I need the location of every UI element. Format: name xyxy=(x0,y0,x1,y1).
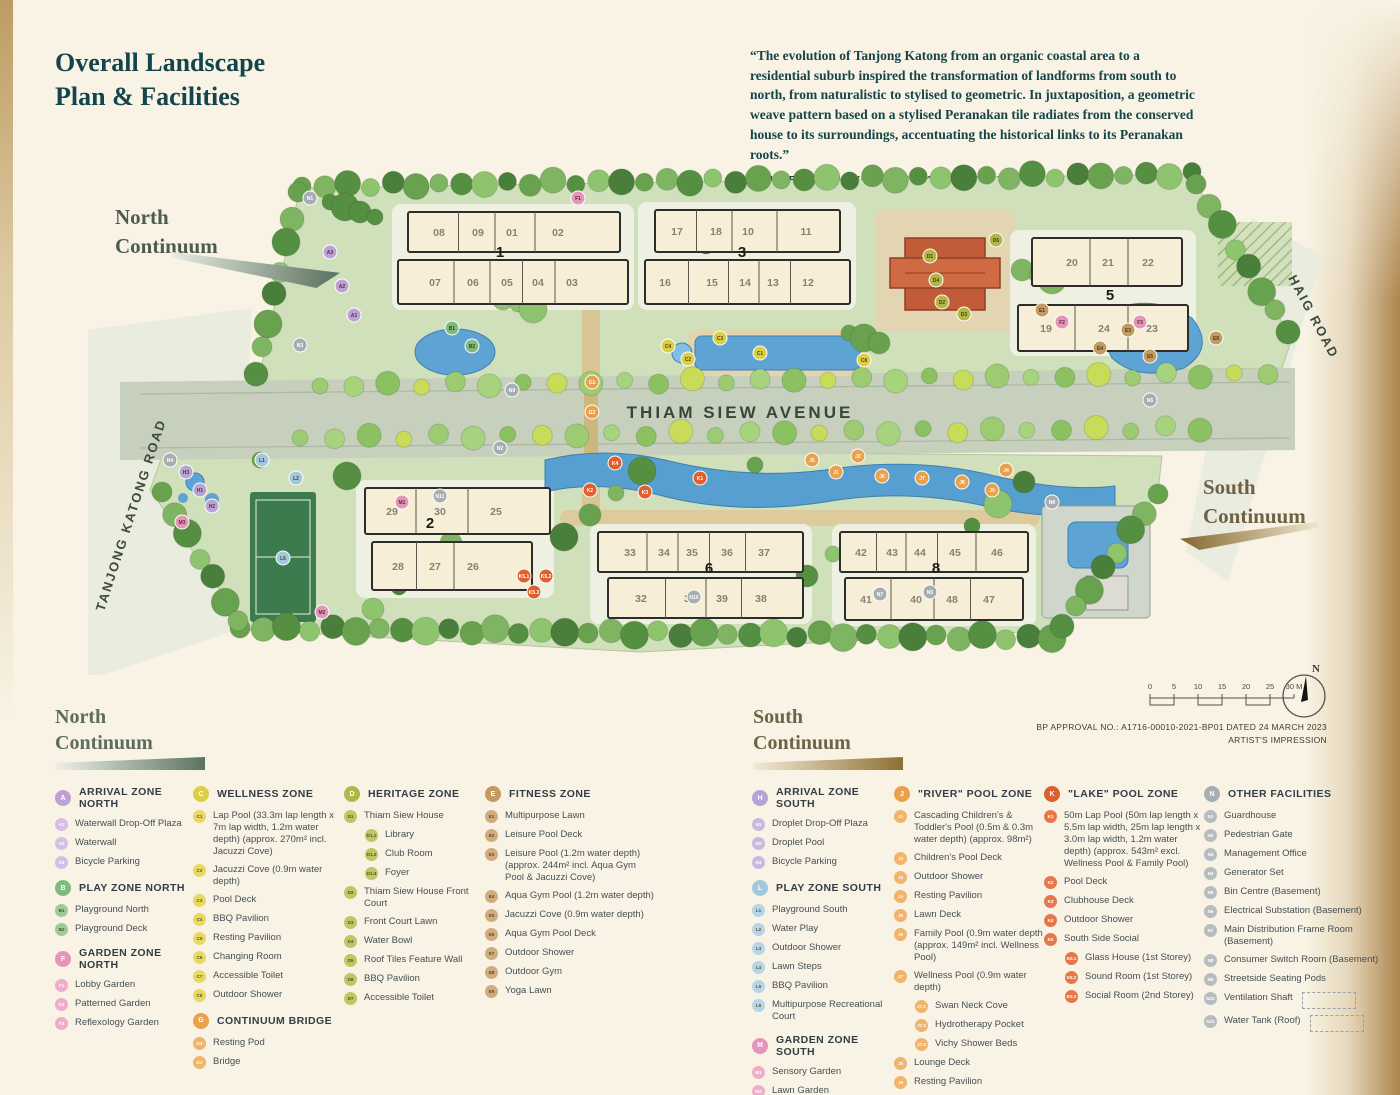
legend-header-south: South Continuum xyxy=(753,704,851,756)
tree-south-right xyxy=(1117,516,1145,544)
unit-number: 03 xyxy=(566,277,578,289)
legend-item-C5: C5Resting Pavilion xyxy=(193,932,343,945)
legend-item-N4: N4Generator Set xyxy=(1204,867,1390,880)
legend-item-G1: G1Resting Pod xyxy=(193,1037,343,1050)
facility-badge-A3: A3 xyxy=(55,856,68,869)
legend-group-B: BPLAY ZONE NORTHB1Playground NorthB2Play… xyxy=(55,880,193,936)
tree-avenue-top xyxy=(376,371,400,395)
tree-north-edge xyxy=(862,165,884,187)
facility-badge-K5.2: K5.2 xyxy=(1065,971,1078,984)
facility-label-J6: Family Pool (0.9m water depth (approx. 1… xyxy=(914,928,1052,964)
map-badge-code-A2: A2 xyxy=(339,284,346,290)
map-badge-code-D6: D6 xyxy=(993,238,1000,244)
tree-north-right xyxy=(1237,254,1261,278)
tree-avenue-bottom xyxy=(877,422,901,446)
map-badge-code-J5: J5 xyxy=(809,458,815,464)
facility-label-H3: Bicycle Parking xyxy=(772,856,837,868)
tree-south-edge xyxy=(808,621,832,645)
map-badge-code-N2: N2 xyxy=(497,446,504,452)
facility-label-B2: Playground Deck xyxy=(75,923,147,935)
scale-notch xyxy=(1198,698,1222,705)
facility-label-C8: Outdoor Shower xyxy=(213,989,282,1001)
facility-badge-J4: J4 xyxy=(894,890,907,903)
zone-title-N: OTHER FACILITIES xyxy=(1228,788,1331,800)
unit-number: 30 xyxy=(434,506,446,518)
legend-item-E3: E3Leisure Pool (1.2m water depth) (appro… xyxy=(485,848,657,884)
tree-north-left xyxy=(244,362,268,386)
zone-title-A: ARRIVAL ZONE NORTH xyxy=(79,786,193,810)
facility-badge-N11: N11 xyxy=(1204,1015,1217,1028)
map-badge-code-C2: C2 xyxy=(685,357,692,363)
facility-label-A1: Waterwall Drop-Off Plaza xyxy=(75,818,182,830)
facility-label-E6: Aqua Gym Pool Deck xyxy=(505,928,596,940)
tree-north-edge xyxy=(745,165,771,191)
facility-label-N2: Pedestrian Gate xyxy=(1224,829,1293,841)
facility-badge-M2: M2 xyxy=(752,1085,765,1095)
map-badge-code-M1: M1 xyxy=(399,500,406,506)
unit-number: 37 xyxy=(758,547,770,559)
tree-avenue-bottom xyxy=(461,426,485,450)
legend-item-L6: L6Multipurpose Recreational Court xyxy=(752,999,892,1023)
tree-south-edge xyxy=(947,627,971,651)
map-badge-code-H2: H2 xyxy=(209,504,216,510)
facility-badge-E3: E3 xyxy=(485,848,498,861)
facility-badge-C7: C7 xyxy=(193,970,206,983)
facility-label-D6: BBQ Pavilion xyxy=(364,973,420,985)
tree-south-right xyxy=(1050,614,1074,638)
legend-item-F3: F3Reflexology Garden xyxy=(55,1017,193,1030)
facility-badge-D6: D6 xyxy=(344,973,357,986)
facility-label-K2: Pool Deck xyxy=(1064,876,1107,888)
legend-column-1: AARRIVAL ZONE NORTHA1Waterwall Drop-Off … xyxy=(55,786,193,1041)
tree-avenue-top xyxy=(1023,369,1039,385)
legend-column-8: NOTHER FACILITIESN1GuardhouseN2Pedestria… xyxy=(1204,786,1390,1043)
facility-badge-D1.2: D1.2 xyxy=(365,848,378,861)
tree-north-edge xyxy=(382,171,404,193)
legend-item-E4: E4Aqua Gym Pool (1.2m water depth) xyxy=(485,890,657,903)
facility-label-L1: Playground South xyxy=(772,904,848,916)
map-badge-code-K2: K2 xyxy=(587,488,594,494)
unit-number: 08 xyxy=(433,227,445,239)
legend-item-L4: L4Lawn Steps xyxy=(752,961,892,974)
facility-label-C7: Accessible Toilet xyxy=(213,970,283,982)
facility-label-E5: Jacuzzi Cove (0.9m water depth) xyxy=(505,909,644,921)
map-badge-code-E3: E3 xyxy=(1125,328,1131,334)
tree-north-edge xyxy=(725,171,747,193)
zone-badge-D: D xyxy=(344,786,360,802)
facility-label-F3: Reflexology Garden xyxy=(75,1017,159,1029)
tree-avenue-top xyxy=(985,364,1009,388)
zone-badge-A: A xyxy=(55,790,71,806)
facility-badge-D5: D5 xyxy=(344,954,357,967)
map-badge-code-N10: N10 xyxy=(689,595,698,601)
facility-badge-B1: B1 xyxy=(55,904,68,917)
facility-badge-F3: F3 xyxy=(55,1017,68,1030)
facility-badge-E7: E7 xyxy=(485,947,498,960)
facility-badge-J3: J3 xyxy=(894,871,907,884)
facility-badge-A2: A2 xyxy=(55,837,68,850)
legend-item-L2: L2Water Play xyxy=(752,923,892,936)
legend-group-L: LPLAY ZONE SOUTHL1Playground SouthL2Wate… xyxy=(752,880,892,1023)
legend-item-D1: D1Thiam Siew House xyxy=(344,810,486,823)
tree-south-left xyxy=(152,482,172,502)
facility-label-C3: Pool Deck xyxy=(213,894,256,906)
map-badge-code-K4: K4 xyxy=(612,461,619,467)
zone-badge-B: B xyxy=(55,880,71,896)
facility-label-E8: Outdoor Gym xyxy=(505,966,562,978)
tree-south-left xyxy=(201,564,225,588)
block-number-6: 6 xyxy=(705,560,713,577)
legend-item-K5.3: K5.3Social Room (2nd Storey) xyxy=(1044,990,1206,1003)
tree-avenue-bottom xyxy=(429,424,449,444)
unit-number: 25 xyxy=(490,506,502,518)
legend-north-wedge xyxy=(55,757,205,770)
unit-number: 27 xyxy=(429,561,441,573)
facility-badge-N8: N8 xyxy=(1204,954,1217,967)
tree-north-edge xyxy=(814,164,840,190)
tree-north-edge xyxy=(951,165,977,191)
facility-label-C1: Lap Pool (33.3m lap length x 7m lap widt… xyxy=(213,810,343,858)
map-badge-code-M3: M3 xyxy=(179,520,186,526)
tree-north-edge xyxy=(998,168,1020,190)
legend-item-J5: J5Lawn Deck xyxy=(894,909,1052,922)
facility-badge-A1: A1 xyxy=(55,818,68,831)
legend-column-3: DHERITAGE ZONED1Thiam Siew HouseD1.1Libr… xyxy=(344,786,486,1016)
facility-badge-N1: N1 xyxy=(1204,810,1217,823)
facility-label-K1: 50m Lap Pool (50m lap length x 5.5m lap … xyxy=(1064,810,1206,870)
wellness-pond xyxy=(415,329,495,375)
unit-number: 17 xyxy=(671,226,683,238)
legend-item-H1: H1Droplet Drop-Off Plaza xyxy=(752,818,892,831)
legend-item-N5: N5Bin Centre (Basement) xyxy=(1204,886,1390,899)
tree-avenue-bottom xyxy=(1155,416,1175,436)
legend-group-header-H: HARRIVAL ZONE SOUTH xyxy=(752,786,892,810)
tree-avenue-bottom xyxy=(1123,423,1139,439)
tree-avenue-top xyxy=(680,367,704,391)
tree-south-edge xyxy=(412,617,440,645)
facility-badge-F2: F2 xyxy=(55,998,68,1011)
legend-group-E: EFITNESS ZONEE1Multipurpose LawnE2Leisur… xyxy=(485,786,657,998)
facility-label-C2: Jacuzzi Cove (0.9m water depth) xyxy=(213,864,343,888)
tree-north-edge xyxy=(793,169,815,191)
legend-item-K5.1: K5.1Glass House (1st Storey) xyxy=(1044,952,1206,965)
facility-badge-J7: J7 xyxy=(894,970,907,983)
map-badge-code-L2: L2 xyxy=(293,476,299,482)
tree-north-edge xyxy=(567,175,585,193)
facility-badge-C5: C5 xyxy=(193,932,206,945)
tree-south-scatter xyxy=(825,546,841,562)
legend-item-J4: J4Resting Pavilion xyxy=(894,890,1052,903)
facility-badge-E9: E9 xyxy=(485,985,498,998)
facility-badge-H1: H1 xyxy=(752,818,765,831)
tree-avenue-bottom xyxy=(1019,422,1035,438)
tree-south-edge xyxy=(369,619,389,639)
facility-label-H1: Droplet Drop-Off Plaza xyxy=(772,818,868,830)
tree-north-left xyxy=(254,310,282,338)
map-label-north-continuum: North Continuum xyxy=(115,203,218,261)
unit-number: 44 xyxy=(914,547,926,559)
facility-label-E1: Multipurpose Lawn xyxy=(505,810,585,822)
legend-item-L5: L5BBQ Pavilion xyxy=(752,980,892,993)
map-badge-code-B1: B1 xyxy=(449,326,456,332)
tree-south-scatter xyxy=(550,523,578,551)
legend-item-N7: N7Main Distribution Frame Room (Basement… xyxy=(1204,924,1390,948)
facility-badge-N6: N6 xyxy=(1204,905,1217,918)
map-badge-code-F2: F2 xyxy=(1059,320,1065,326)
tree-avenue-top xyxy=(344,377,364,397)
zone-badge-K: K xyxy=(1044,786,1060,802)
tree-north-scatter xyxy=(367,209,383,225)
map-badge-code-N7: N7 xyxy=(877,592,884,598)
tree-north-edge xyxy=(772,171,790,189)
map-badge-code-L1: L1 xyxy=(259,458,265,464)
legend-group-header-G: GCONTINUUM BRIDGE xyxy=(193,1013,343,1029)
facility-label-J5: Lawn Deck xyxy=(914,909,961,921)
map-badge-code-F3: F3 xyxy=(1137,320,1143,326)
map-badge-code-J4: J4 xyxy=(1003,468,1009,474)
map-badge-code-E8: E8 xyxy=(1213,336,1219,342)
facility-label-J8: Lounge Deck xyxy=(914,1057,970,1069)
facility-badge-M1: M1 xyxy=(752,1066,765,1079)
legend-group-D: DHERITAGE ZONED1Thiam Siew HouseD1.1Libr… xyxy=(344,786,486,1005)
tree-north-edge xyxy=(882,167,908,193)
tree-south-left xyxy=(228,611,248,631)
scale-tick-label: 10 xyxy=(1194,682,1202,691)
map-badge-code-G2: G2 xyxy=(589,410,596,416)
tree-avenue-top xyxy=(547,373,567,393)
facility-badge-D2: D2 xyxy=(344,886,357,899)
tree-avenue-bottom xyxy=(636,427,656,447)
unit-number: 12 xyxy=(802,277,814,289)
facility-badge-G2: G2 xyxy=(193,1056,206,1069)
facility-label-E2: Leisure Pool Deck xyxy=(505,829,582,841)
tree-north-edge xyxy=(403,174,429,200)
unit-number: 48 xyxy=(946,594,958,606)
tree-north-edge xyxy=(335,171,361,197)
unit-number: 33 xyxy=(624,547,636,559)
avenue-label: THIAM SIEW AVENUE xyxy=(627,403,854,422)
facility-badge-K5: K5 xyxy=(1044,933,1057,946)
tree-south-edge xyxy=(856,624,876,644)
facility-label-J4: Resting Pavilion xyxy=(914,890,982,902)
map-badge-code-D3: D3 xyxy=(961,312,968,318)
map-badge-code-N8: N8 xyxy=(1049,500,1056,506)
legend-item-J9: J9Resting Pavilion xyxy=(894,1076,1052,1089)
tree-avenue-bottom xyxy=(773,421,797,445)
map-badge-code-N9: N9 xyxy=(509,388,516,394)
bp-approval-text: BP APPROVAL NO.: A1716-00010-2021-BP01 D… xyxy=(1005,722,1327,732)
legend-item-N6: N6Electrical Substation (Basement) xyxy=(1204,905,1390,918)
tree-avenue-top xyxy=(1226,365,1242,381)
facility-badge-J7.2: J7.2 xyxy=(915,1019,928,1032)
legend-item-J3: J3Outdoor Shower xyxy=(894,871,1052,884)
map-badge-code-D2: D2 xyxy=(939,300,946,306)
tree-north-edge xyxy=(677,170,703,196)
tree-north-edge xyxy=(540,167,566,193)
legend-group-header-L: LPLAY ZONE SOUTH xyxy=(752,880,892,896)
unit-number: 05 xyxy=(501,277,513,289)
tree-avenue-top xyxy=(1087,363,1111,387)
tree-south-edge xyxy=(899,623,927,651)
legend-item-J7.3: J7.3Vichy Shower Beds xyxy=(894,1038,1052,1051)
legend-group-C: CWELLNESS ZONEC1Lap Pool (33.3m lap leng… xyxy=(193,786,343,1002)
map-badge-code-A1: A1 xyxy=(351,313,358,319)
map-badge-code-E1: E1 xyxy=(1039,308,1045,314)
facility-label-D1: Thiam Siew House xyxy=(364,810,444,822)
legend-item-D4: D4Water Bowl xyxy=(344,935,486,948)
unit-number: 43 xyxy=(886,547,898,559)
facility-badge-L3: L3 xyxy=(752,942,765,955)
tree-south-edge xyxy=(760,619,788,647)
tree-north-left xyxy=(262,282,286,306)
legend-item-C6: C6Changing Room xyxy=(193,951,343,964)
legend-item-D1.1: D1.1Library xyxy=(344,829,486,842)
facility-label-A2: Waterwall xyxy=(75,837,116,849)
legend-item-N1: N1Guardhouse xyxy=(1204,810,1390,823)
facility-label-A3: Bicycle Parking xyxy=(75,856,140,868)
tree-south-edge xyxy=(648,621,668,641)
facility-badge-D1.1: D1.1 xyxy=(365,829,378,842)
map-badge-code-H3: H3 xyxy=(183,470,190,476)
facility-badge-N2: N2 xyxy=(1204,829,1217,842)
zone-title-D: HERITAGE ZONE xyxy=(368,788,459,800)
map-badge-code-N5: N5 xyxy=(927,590,934,596)
unit-number: 20 xyxy=(1066,257,1078,269)
facility-label-D3: Front Court Lawn xyxy=(364,916,437,928)
facility-label-D4: Water Bowl xyxy=(364,935,412,947)
legend-item-F1: F1Lobby Garden xyxy=(55,979,193,992)
tree-avenue-top xyxy=(884,369,908,393)
facility-label-J2: Children's Pool Deck xyxy=(914,852,1002,864)
tree-avenue-bottom xyxy=(1188,418,1212,442)
legend-item-N11: N11Water Tank (Roof) xyxy=(1204,1015,1390,1032)
facility-badge-N7: N7 xyxy=(1204,924,1217,937)
block-number-5: 5 xyxy=(1106,287,1114,304)
droplet-pool-3 xyxy=(178,493,188,503)
tree-avenue-top xyxy=(477,374,501,398)
legend-item-K2: K2Pool Deck xyxy=(1044,876,1206,889)
tree-north-edge xyxy=(430,174,448,192)
legend-column-4: EFITNESS ZONEE1Multipurpose LawnE2Leisur… xyxy=(485,786,657,1009)
legend-item-B2: B2Playground Deck xyxy=(55,923,193,936)
legend-group-header-F: FGARDEN ZONE NORTH xyxy=(55,947,193,971)
tree-avenue-top xyxy=(820,372,836,388)
legend-item-E8: E8Outdoor Gym xyxy=(485,966,657,979)
tree-avenue-top xyxy=(852,367,872,387)
tree-south-right xyxy=(1066,596,1086,616)
tree-north-edge xyxy=(498,172,516,190)
facility-badge-D4: D4 xyxy=(344,935,357,948)
facility-badge-G1: G1 xyxy=(193,1037,206,1050)
facility-badge-F1: F1 xyxy=(55,979,68,992)
legend-item-J6: J6Family Pool (0.9m water depth (approx.… xyxy=(894,928,1052,964)
tree-avenue-top xyxy=(782,368,806,392)
facility-badge-C4: C4 xyxy=(193,913,206,926)
facility-badge-B2: B2 xyxy=(55,923,68,936)
legend-group-header-C: CWELLNESS ZONE xyxy=(193,786,343,802)
facility-label-E4: Aqua Gym Pool (1.2m water depth) xyxy=(505,890,654,902)
tree-avenue-top xyxy=(649,374,669,394)
facility-badge-C1: C1 xyxy=(193,810,206,823)
tree-north-scatter xyxy=(868,332,890,354)
legend-group-header-M: MGARDEN ZONE SOUTH xyxy=(752,1034,892,1058)
map-badge-code-N4: N4 xyxy=(167,458,174,464)
facility-label-K5.3: Social Room (2nd Storey) xyxy=(1085,990,1194,1002)
facility-badge-E4: E4 xyxy=(485,890,498,903)
map-badge-code-M2: M2 xyxy=(319,610,326,616)
tree-avenue-bottom xyxy=(357,423,381,447)
tree-north-right xyxy=(1265,300,1285,320)
unit-number: 19 xyxy=(1040,323,1052,335)
facility-label-G2: Bridge xyxy=(213,1056,240,1068)
zone-title-J: "RIVER" POOL ZONE xyxy=(918,788,1032,800)
legend-item-E1: E1Multipurpose Lawn xyxy=(485,810,657,823)
map-badge-code-J9: J9 xyxy=(989,488,995,494)
facility-label-L5: BBQ Pavilion xyxy=(772,980,828,992)
tree-avenue-top xyxy=(1156,363,1176,383)
legend-item-J7.1: J7.1Swan Neck Cove xyxy=(894,1000,1052,1013)
map-badge-code-J7: J7 xyxy=(919,476,925,482)
facility-badge-C6: C6 xyxy=(193,951,206,964)
facility-label-K3: Clubhouse Deck xyxy=(1064,895,1134,907)
facility-label-D2: Thiam Siew House Front Court xyxy=(364,886,486,910)
tree-south-edge xyxy=(578,623,598,643)
tree-south-edge xyxy=(481,615,509,643)
facility-badge-C2: C2 xyxy=(193,864,206,877)
tree-north-edge xyxy=(909,167,927,185)
facility-label-D1.3: Foyer xyxy=(385,867,409,879)
tree-avenue-top xyxy=(414,379,430,395)
legend-item-N2: N2Pedestrian Gate xyxy=(1204,829,1390,842)
zone-badge-M: M xyxy=(752,1038,768,1054)
map-badge-code-H1: H1 xyxy=(197,488,204,494)
unit-number: 41 xyxy=(860,594,872,606)
legend-item-D1.2: D1.2Club Room xyxy=(344,848,486,861)
dashed-outline-icon-N10 xyxy=(1302,992,1356,1009)
legend-item-C4: C4BBQ Pavilion xyxy=(193,913,343,926)
legend-group-M: MGARDEN ZONE SOUTHM1Sensory GardenM2Lawn… xyxy=(752,1034,892,1095)
tree-south-edge xyxy=(1017,624,1041,648)
tree-avenue-bottom xyxy=(915,421,931,437)
facility-badge-J2: J2 xyxy=(894,852,907,865)
page-title: Overall Landscape Plan & Facilities xyxy=(55,46,265,115)
facility-badge-N4: N4 xyxy=(1204,867,1217,880)
map-badge-code-D4: D4 xyxy=(933,278,940,284)
unit-number: 34 xyxy=(658,547,670,559)
unit-number: 28 xyxy=(392,561,404,573)
legend-item-D1.3: D1.3Foyer xyxy=(344,867,486,880)
tree-south-edge xyxy=(530,618,554,642)
facility-badge-C8: C8 xyxy=(193,989,206,1002)
legend-header-north: North Continuum xyxy=(55,704,153,756)
unit-number: 16 xyxy=(659,277,671,289)
tree-north-left xyxy=(272,228,300,256)
tree-south-scatter xyxy=(362,598,384,620)
unit-number: 45 xyxy=(949,547,961,559)
tree-north-edge xyxy=(704,169,722,187)
legend-item-C8: C8Outdoor Shower xyxy=(193,989,343,1002)
facility-badge-J7.3: J7.3 xyxy=(915,1038,928,1051)
legend-group-A: AARRIVAL ZONE NORTHA1Waterwall Drop-Off … xyxy=(55,786,193,869)
tree-avenue-top xyxy=(1258,365,1278,385)
tree-south-edge xyxy=(439,619,459,639)
facility-label-J1: Cascading Children's & Toddler's Pool (0… xyxy=(914,810,1052,846)
quote-text: “The evolution of Tanjong Katong from an… xyxy=(750,48,1195,162)
facility-badge-K5.3: K5.3 xyxy=(1065,990,1078,1003)
legend-item-J7: J7Wellness Pool (0.9m water depth) xyxy=(894,970,1052,994)
tree-avenue-top xyxy=(750,369,770,389)
tree-north-edge xyxy=(930,167,952,189)
